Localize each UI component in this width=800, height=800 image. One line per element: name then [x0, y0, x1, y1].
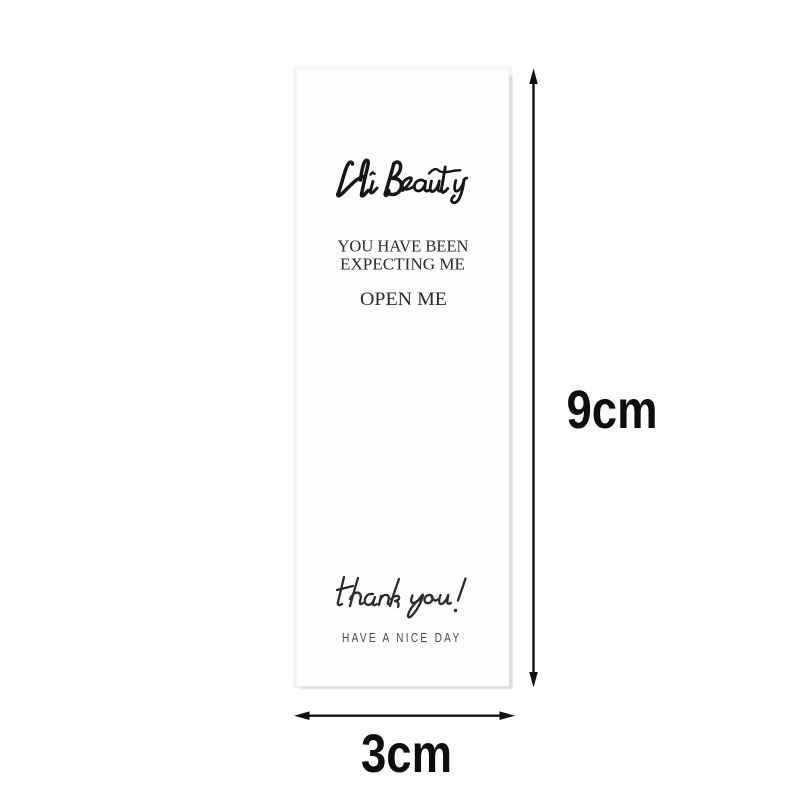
svg-text:EXPECTING ME: EXPECTING ME: [340, 255, 465, 274]
svg-text:9cm: 9cm: [567, 380, 658, 440]
svg-text:3cm: 3cm: [361, 724, 452, 784]
svg-text:YOU HAVE BEEN: YOU HAVE BEEN: [338, 237, 469, 256]
svg-text:OPEN ME: OPEN ME: [360, 290, 447, 310]
svg-text:HAVE A NICE DAY: HAVE A NICE DAY: [342, 630, 462, 645]
